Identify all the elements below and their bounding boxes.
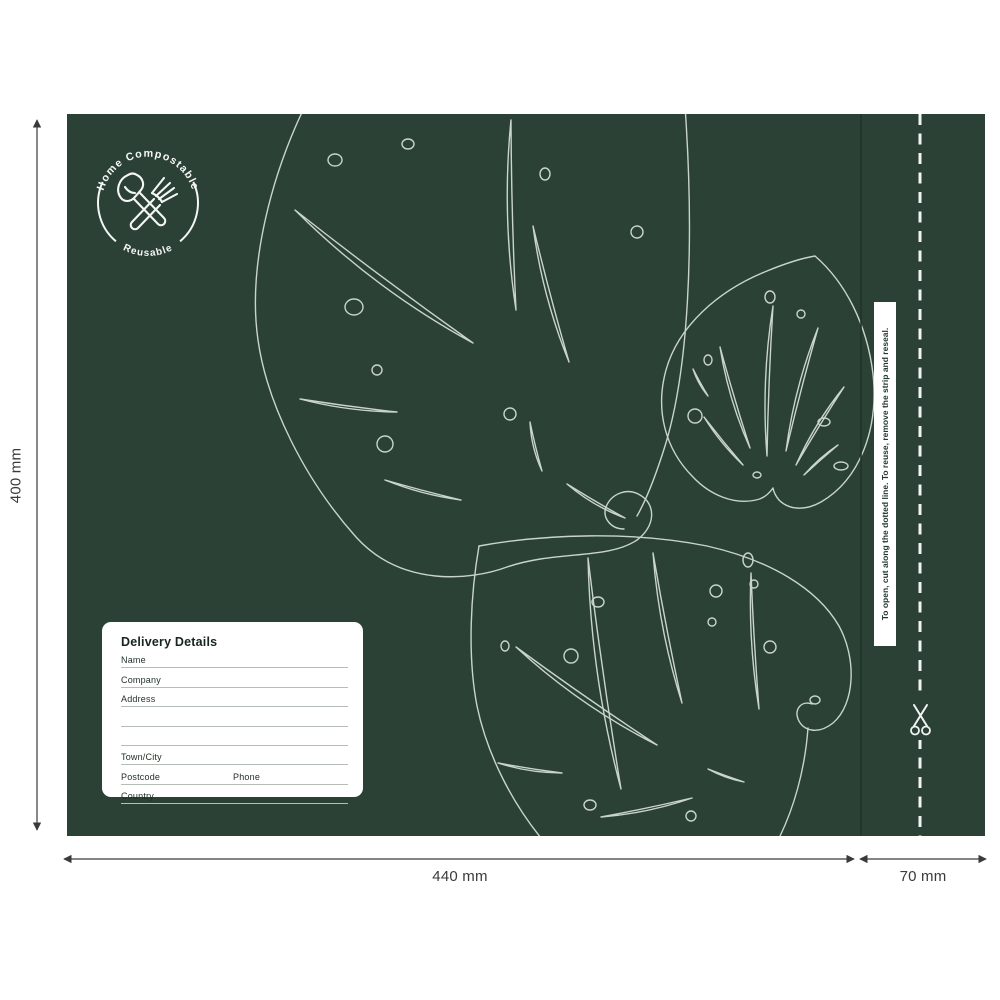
field-name: Name <box>121 649 348 668</box>
phone-label: Phone <box>233 772 260 782</box>
height-dimension-label: 400 mm <box>8 436 25 516</box>
badge-arc-top-text: Home Compostable <box>95 148 201 192</box>
field-company: Company <box>121 668 348 687</box>
packaging-dieline-mockup: 400 mm 440 mm 70 mm <box>0 0 1000 1000</box>
delivery-title: Delivery Details <box>121 635 348 649</box>
field-country: Country <box>121 785 348 804</box>
address-label: Address <box>121 694 155 704</box>
field-postcode-phone: Postcode Phone <box>121 765 348 784</box>
country-label: Country <box>121 791 154 801</box>
mailer-bag-panel: To open, cut along the dotted line. To r… <box>67 114 985 836</box>
badge-ring-right <box>180 182 198 241</box>
strip-width-dimension-label: 70 mm <box>873 868 973 885</box>
postcode-label: Postcode <box>121 772 160 782</box>
badge-ring-left <box>98 182 116 241</box>
field-address-line2 <box>121 707 348 726</box>
field-address: Address <box>121 688 348 707</box>
field-town-city: Town/City <box>121 746 348 765</box>
company-label: Company <box>121 675 161 685</box>
leaf-right <box>662 256 874 508</box>
delivery-details-label: Delivery Details Name Company Address To… <box>102 622 363 797</box>
reseal-instruction-text: To open, cut along the dotted line. To r… <box>874 302 896 646</box>
reseal-instruction-strip: To open, cut along the dotted line. To r… <box>874 302 896 646</box>
name-label: Name <box>121 655 146 665</box>
field-address-line3 <box>121 727 348 746</box>
compostable-badge: Home Compostable Reusable <box>88 143 208 263</box>
leaf-top-left <box>255 114 689 577</box>
leaf-bottom <box>471 536 851 836</box>
badge-arc-bottom-text: Reusable <box>121 242 174 259</box>
main-width-dimension-label: 440 mm <box>410 868 510 885</box>
town-city-label: Town/City <box>121 752 162 762</box>
scissors-icon <box>911 698 930 740</box>
